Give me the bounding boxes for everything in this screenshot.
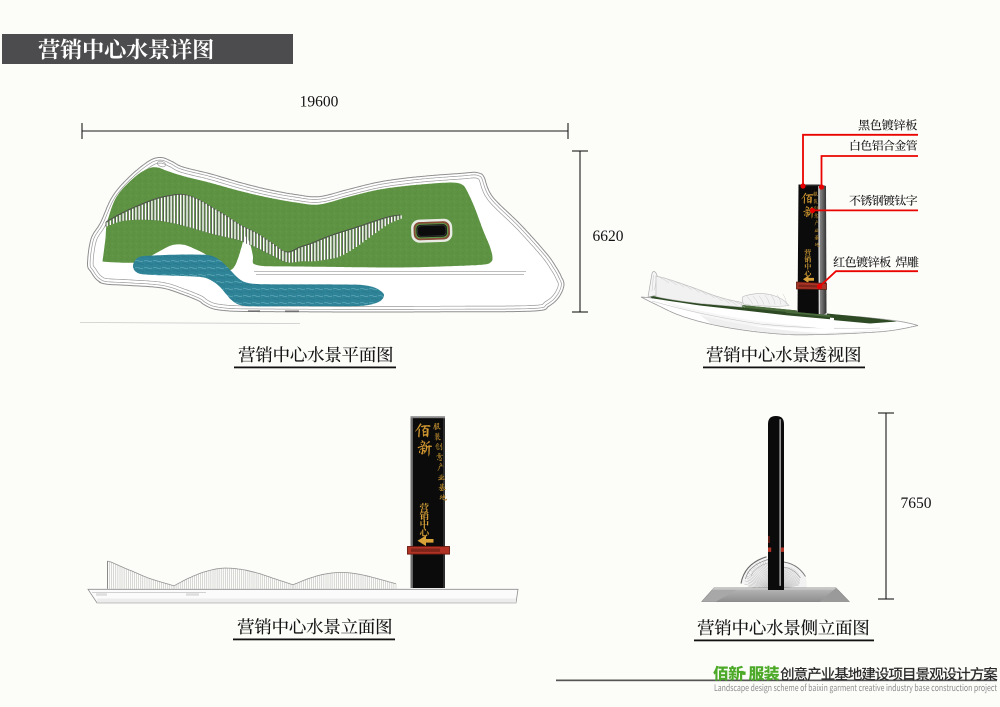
svg-text:6620: 6620 [593,228,624,245]
svg-text:7650: 7650 [901,495,932,512]
svg-text:19600: 19600 [300,94,339,111]
